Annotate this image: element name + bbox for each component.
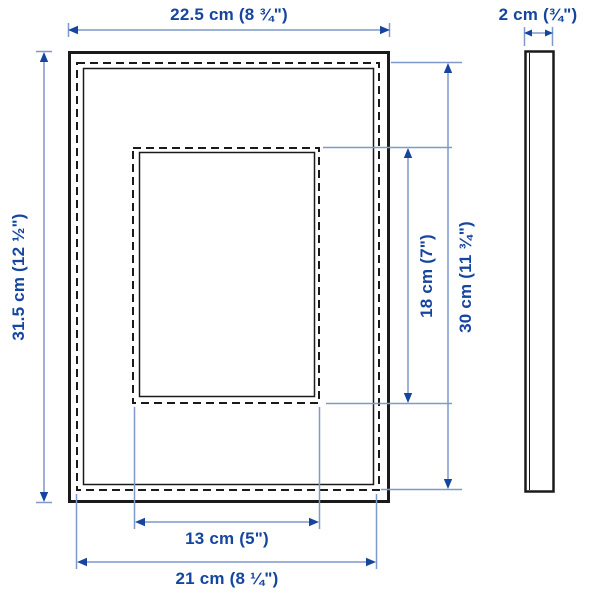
mat-opening-edge [140, 153, 315, 397]
arrow-head-left [68, 26, 78, 34]
opening-width-label: 13 cm (5") [185, 529, 269, 549]
mat-opening-dashed-outline [133, 148, 319, 403]
picture-width-label: 21 cm (8 ¼") [175, 569, 278, 589]
arrow-head-down [444, 479, 452, 489]
arrow-head-left [77, 558, 87, 566]
frame-width-label: 22.5 cm (8 ¾") [170, 5, 288, 25]
arrow-head-right [366, 558, 376, 566]
arrow-head-down [404, 393, 412, 403]
diagram-linework [0, 0, 600, 600]
arrow-head-left [135, 518, 145, 526]
arrow-head-right [380, 26, 390, 34]
dim-opening-width [135, 407, 320, 529]
dim-frame-height [36, 52, 52, 503]
frame-side-view [526, 52, 554, 492]
frame-outer-edge [70, 53, 389, 502]
frame-height-label: 31.5 cm (12 ½") [9, 213, 29, 340]
dim-frame-depth [524, 27, 553, 46]
arrow-head-up [444, 63, 452, 73]
arrow-head-up [40, 52, 48, 62]
picture-height-label: 30 cm (11 ¾") [456, 221, 476, 333]
frame-inner-edge [84, 69, 374, 485]
arrow-head-right [309, 518, 319, 526]
frame-depth-label: 2 cm (¾") [499, 5, 578, 25]
frame-dimension-diagram: 22.5 cm (8 ¾") 2 cm (¾") 31.5 cm (12 ½")… [0, 0, 600, 600]
picture-size-dashed-outline [77, 63, 379, 490]
arrow-head-up [404, 148, 412, 158]
dim-frame-width [68, 23, 390, 37]
opening-height-label: 18 cm (7") [417, 234, 437, 318]
frame-front-view [70, 53, 389, 502]
arrow-head-down [40, 492, 48, 502]
